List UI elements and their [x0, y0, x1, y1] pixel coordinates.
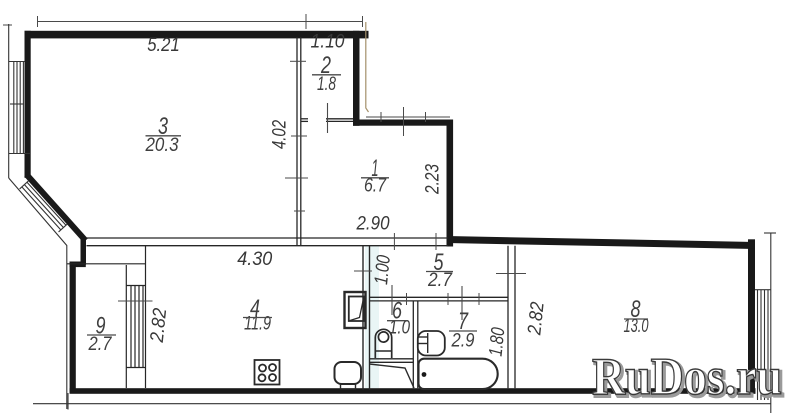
svg-text:4.02: 4.02	[270, 120, 291, 149]
svg-text:20.3: 20.3	[145, 135, 179, 156]
svg-text:1.80: 1.80	[486, 326, 510, 357]
svg-text:2.82: 2.82	[147, 307, 172, 344]
svg-text:4.30: 4.30	[237, 249, 272, 270]
svg-text:1.8: 1.8	[317, 74, 336, 95]
svg-text:1.00: 1.00	[371, 254, 395, 286]
svg-text:5.21: 5.21	[147, 35, 180, 56]
svg-text:11.9: 11.9	[244, 314, 271, 335]
svg-text:2.7: 2.7	[88, 334, 113, 355]
svg-text:2.7: 2.7	[427, 270, 453, 291]
svg-text:6.7: 6.7	[364, 176, 387, 197]
svg-text:2.23: 2.23	[423, 164, 444, 195]
svg-text:2.82: 2.82	[524, 301, 548, 337]
svg-text:RuDos.ru: RuDos.ru	[592, 348, 782, 406]
svg-text:1.10: 1.10	[311, 32, 345, 53]
svg-text:2.90: 2.90	[356, 214, 390, 235]
svg-text:2.9: 2.9	[451, 331, 475, 352]
